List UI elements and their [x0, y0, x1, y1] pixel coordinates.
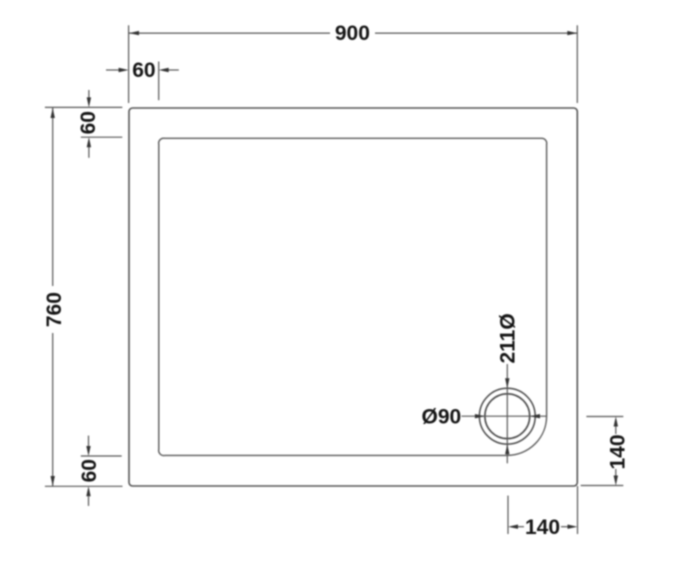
svg-text:60: 60: [77, 111, 100, 134]
svg-text:900: 900: [335, 22, 370, 45]
svg-text:211Ø: 211Ø: [496, 313, 519, 363]
svg-text:140: 140: [525, 516, 560, 539]
svg-text:60: 60: [132, 59, 155, 82]
svg-text:760: 760: [43, 292, 66, 327]
svg-text:60: 60: [78, 459, 101, 482]
svg-text:Ø90: Ø90: [422, 405, 462, 428]
svg-text:140: 140: [606, 434, 629, 469]
